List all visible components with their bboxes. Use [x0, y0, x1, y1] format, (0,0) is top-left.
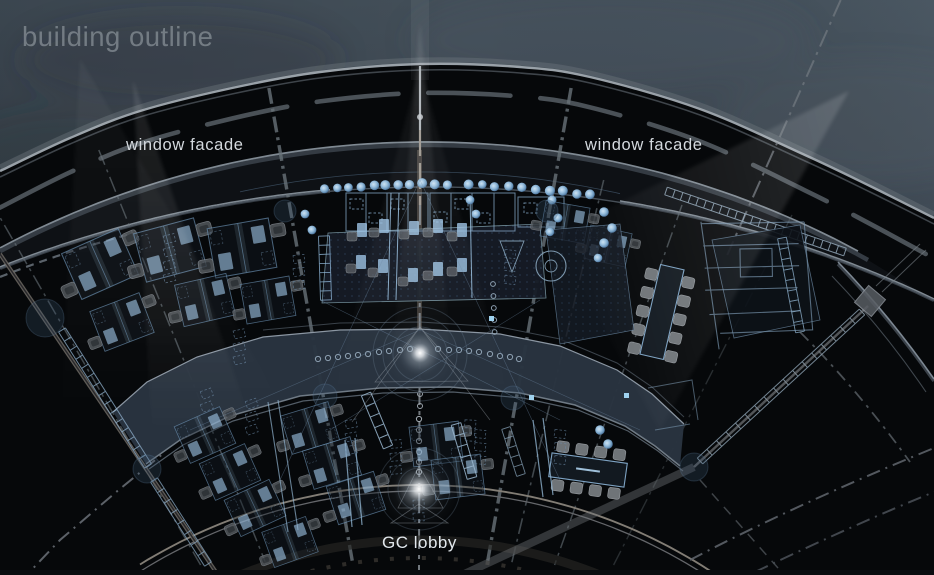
svg-text:window facade: window facade	[125, 136, 244, 154]
svg-text:GC lobby: GC lobby	[382, 533, 457, 552]
svg-text:building outline: building outline	[22, 21, 213, 52]
svg-text:window facade: window facade	[584, 136, 703, 154]
